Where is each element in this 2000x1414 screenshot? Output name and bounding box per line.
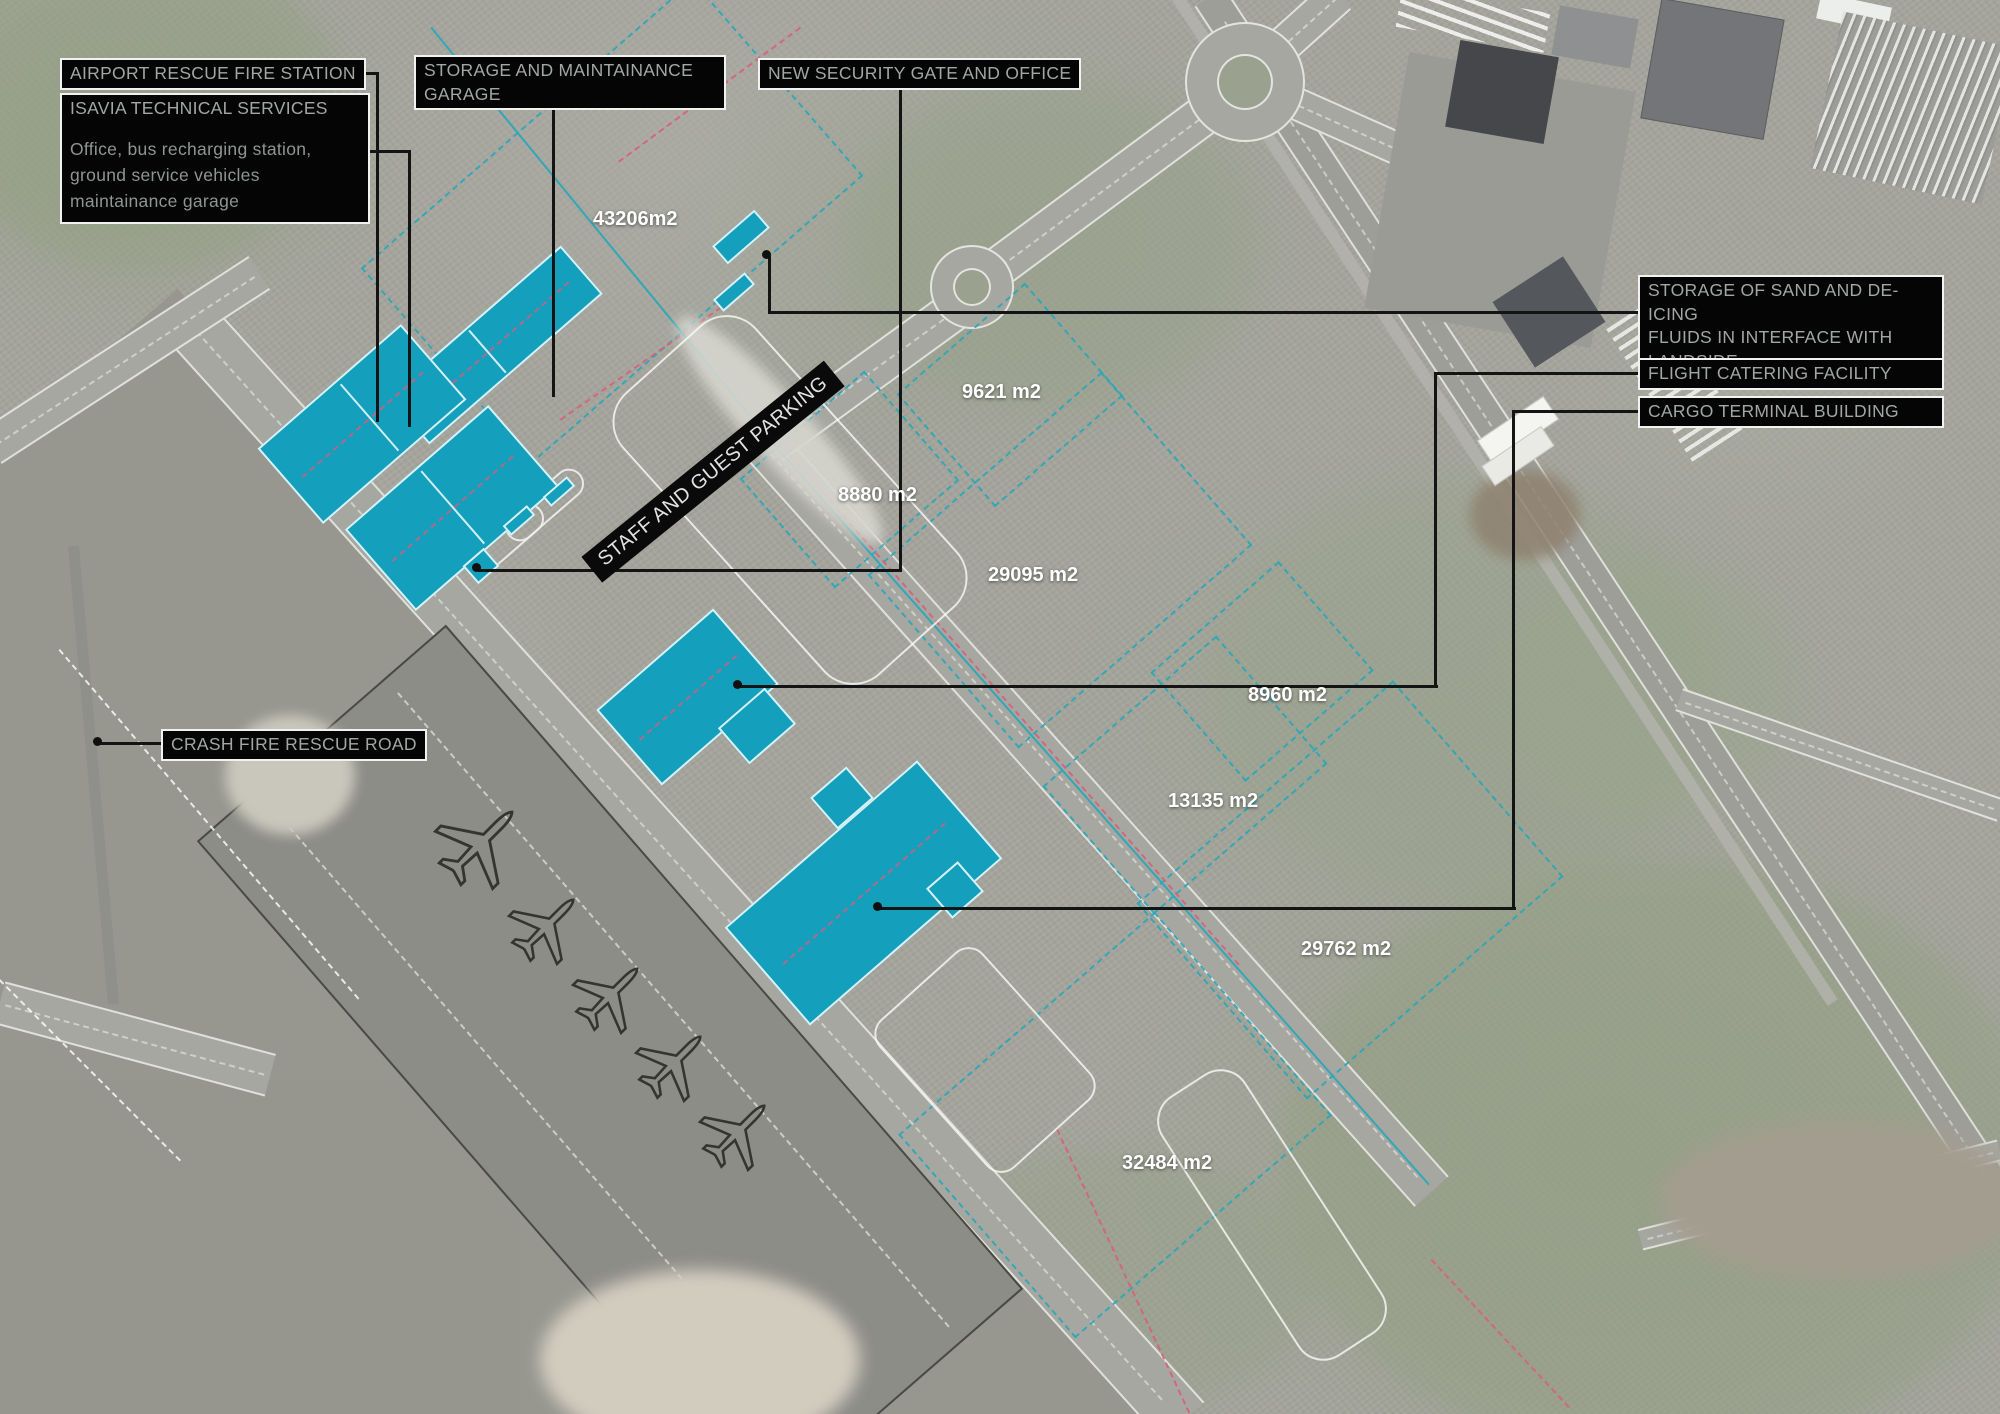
callout-crash-road-label: CRASH FIRE RESCUE ROAD <box>171 734 417 754</box>
leader-dot <box>472 563 481 572</box>
area-label-43206: 43206m2 <box>593 208 678 231</box>
leader-line <box>770 311 1640 314</box>
leader-line <box>408 150 411 427</box>
leader-line <box>478 569 902 572</box>
area-label-8880: 8880 m2 <box>838 484 917 507</box>
building-divider <box>421 471 485 545</box>
leader-line <box>100 742 163 745</box>
callout-security-gate: NEW SECURITY GATE AND OFFICE <box>758 58 1081 90</box>
leader-line <box>365 150 411 153</box>
leader-dot <box>873 902 882 911</box>
leader-line <box>552 103 555 397</box>
callout-isavia-body: Office, bus recharging station, ground s… <box>70 136 360 215</box>
leader-line <box>1512 410 1515 910</box>
building-divider <box>340 383 399 451</box>
callout-arff-label: AIRPORT RESCUE FIRE STATION <box>70 63 356 83</box>
area-label-13135: 13135 m2 <box>1168 790 1258 813</box>
building-footprint <box>1640 0 1784 140</box>
roundabout-island <box>1217 54 1273 110</box>
area-label-9621: 9621 m2 <box>962 381 1041 404</box>
callout-catering: FLIGHT CATERING FACILITY <box>1638 358 1944 390</box>
leader-line <box>1434 372 1437 688</box>
building-footprint <box>1445 40 1559 144</box>
leader-dot <box>733 680 742 689</box>
leader-line <box>1514 410 1640 413</box>
building-axis <box>302 372 424 478</box>
callout-isavia-body-line: Office, bus recharging station, <box>70 136 360 162</box>
area-label-29095: 29095 m2 <box>988 564 1078 587</box>
callout-storage-garage-line: STORAGE AND MAINTAINANCE <box>424 59 716 83</box>
callout-arff: AIRPORT RESCUE FIRE STATION <box>60 58 366 90</box>
callout-storage-garage: STORAGE AND MAINTAINANCE GARAGE <box>414 55 726 110</box>
callout-isavia: ISAVIA TECHNICAL SERVICES Office, bus re… <box>60 93 370 224</box>
callout-deicing-line: FLUIDS IN INTERFACE WITH <box>1648 326 1934 350</box>
callout-deicing-line: STORAGE OF SAND AND DE-ICING <box>1648 279 1934 326</box>
apron <box>0 1080 520 1414</box>
callout-security-gate-label: NEW SECURITY GATE AND OFFICE <box>768 63 1071 83</box>
leader-line <box>376 72 379 422</box>
roundabout-island <box>953 268 991 306</box>
callout-cargo-label: CARGO TERMINAL BUILDING <box>1648 401 1899 421</box>
leader-line <box>1436 372 1640 375</box>
callout-isavia-title: ISAVIA TECHNICAL SERVICES <box>70 97 360 121</box>
leader-line <box>740 685 1438 688</box>
callout-crash-road: CRASH FIRE RESCUE ROAD <box>161 729 427 761</box>
callout-storage-garage-line: GARAGE <box>424 83 716 107</box>
callout-catering-label: FLIGHT CATERING FACILITY <box>1648 363 1892 383</box>
building-footprint <box>1551 5 1638 68</box>
map-canvas: AIRPORT RESCUE FIRE STATION ISAVIA TECHN… <box>0 0 2000 1414</box>
area-label-8960: 8960 m2 <box>1248 684 1327 707</box>
area-label-29762: 29762 m2 <box>1301 938 1391 961</box>
dirt-patch <box>1470 470 1580 560</box>
leader-line <box>880 907 1516 910</box>
area-label-32484: 32484 m2 <box>1122 1152 1212 1175</box>
building-axis <box>782 822 946 965</box>
car-park <box>1810 12 2000 205</box>
building-divider <box>468 330 506 373</box>
callout-isavia-body-line: maintainance garage <box>70 188 360 214</box>
callout-isavia-body-line: ground service vehicles <box>70 162 360 188</box>
leader-line <box>768 256 771 314</box>
dirt-patch <box>1660 1120 2000 1280</box>
leader-dot <box>762 250 771 259</box>
leader-dot <box>93 737 102 746</box>
callout-cargo: CARGO TERMINAL BUILDING <box>1638 396 1944 428</box>
